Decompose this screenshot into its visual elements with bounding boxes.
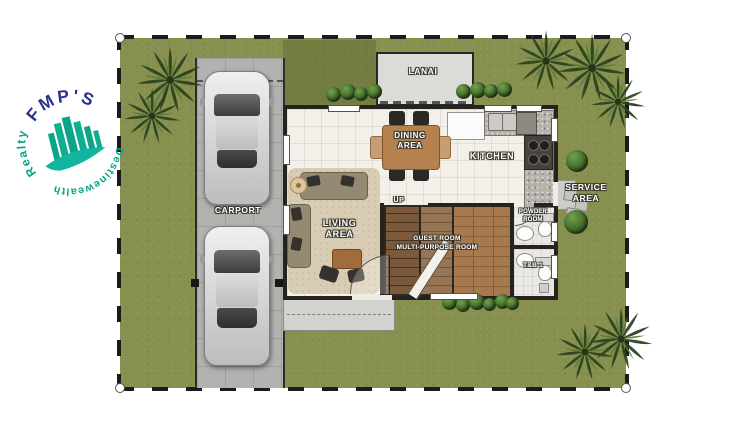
toilet-bath-label: T&B 1 (508, 262, 558, 270)
window (283, 135, 290, 165)
lot-corner-marker (621, 383, 631, 393)
dining-line2: AREA (383, 141, 437, 151)
dining-chair (413, 111, 429, 126)
guest-line1: GUEST ROOM (357, 234, 517, 243)
dining-label: DINING AREA (383, 131, 437, 151)
logo-left-text: Realty (14, 125, 41, 181)
palm-tree (587, 71, 649, 133)
living-line1: LIVING (297, 218, 382, 229)
carport-label: CARPORT (195, 205, 281, 216)
logo-building-icon (35, 110, 108, 174)
kitchen-sink-basin (502, 113, 517, 131)
car-windshield (214, 250, 260, 272)
logo-brand-text: FMP'S (18, 77, 104, 128)
lot-grass-area: CARPORT LANAI SERVICE AREA (120, 38, 626, 388)
car-roof (216, 117, 258, 149)
sofa-pillow (340, 175, 355, 187)
wall (428, 203, 514, 207)
bush (497, 82, 512, 97)
guest-room-label: GUEST ROOM MULTI-PURPOSE ROOM (357, 234, 517, 252)
car-mirror (269, 98, 274, 106)
entry-porch (283, 300, 395, 331)
service-line2: AREA (554, 193, 618, 204)
burner (528, 140, 539, 151)
lanai-threshold (380, 101, 470, 104)
window (430, 293, 478, 300)
window (551, 118, 558, 142)
bush (354, 87, 368, 101)
car-mirror (200, 255, 205, 263)
bush (484, 84, 498, 98)
window (516, 105, 542, 112)
lanai-label: LANAI (378, 66, 468, 77)
fmps-destinewealth-realty-logo: FMP'S Destinewealth Realty (14, 68, 128, 218)
refrigerator (447, 112, 485, 140)
service-line1: SERVICE (554, 182, 618, 193)
window (551, 222, 558, 242)
bush (456, 84, 471, 99)
house-outline: KITCHEN DINING AREA (283, 105, 558, 300)
window (283, 205, 290, 235)
bush (564, 210, 588, 234)
powder-line2: ROOM (508, 216, 558, 224)
oven (516, 112, 537, 135)
stairs-up-label: UP (388, 195, 410, 206)
service-area-label: SERVICE AREA (554, 182, 618, 204)
car-rear-window (217, 308, 258, 327)
svg-text:Realty: Realty (14, 125, 41, 181)
bush (367, 84, 382, 99)
dining-table: DINING AREA (382, 125, 440, 170)
bush (506, 297, 519, 310)
palm-tree (585, 303, 657, 375)
shower-drain (539, 283, 549, 293)
car-mirror (269, 255, 274, 263)
powder-line1: POWDER (508, 208, 558, 216)
car-windshield (214, 94, 260, 115)
burner (539, 140, 550, 151)
window (328, 105, 360, 112)
kitchen-sink-basin (488, 113, 503, 131)
bush (326, 87, 341, 102)
lot-corner-marker (115, 383, 125, 393)
svg-text:FMP'S: FMP'S (18, 77, 104, 128)
wall (514, 245, 556, 249)
bush (566, 150, 588, 172)
side-table-lamp (290, 177, 307, 194)
dining-line1: DINING (383, 131, 437, 141)
car-rear-window (217, 150, 258, 168)
car-roof (216, 274, 258, 307)
window (484, 105, 512, 112)
carport-post (275, 279, 283, 287)
palm-tree (120, 84, 184, 148)
lot-corner-marker (115, 33, 125, 43)
carport-post (191, 279, 199, 287)
porch-line (287, 314, 391, 315)
car-top-view (204, 71, 270, 205)
guest-line2: MULTI-PURPOSE ROOM (357, 243, 517, 252)
front-door-opening (352, 295, 392, 300)
floor-plan-image: CARPORT LANAI SERVICE AREA (0, 0, 748, 426)
dining-chair (389, 111, 405, 126)
bush (456, 298, 470, 312)
kitchen-label: KITCHEN (442, 151, 542, 162)
bathroom-sink (516, 226, 534, 241)
powder-room-label: POWDER ROOM (508, 208, 558, 224)
car-top-view (204, 226, 270, 366)
coffee-table (332, 249, 362, 269)
